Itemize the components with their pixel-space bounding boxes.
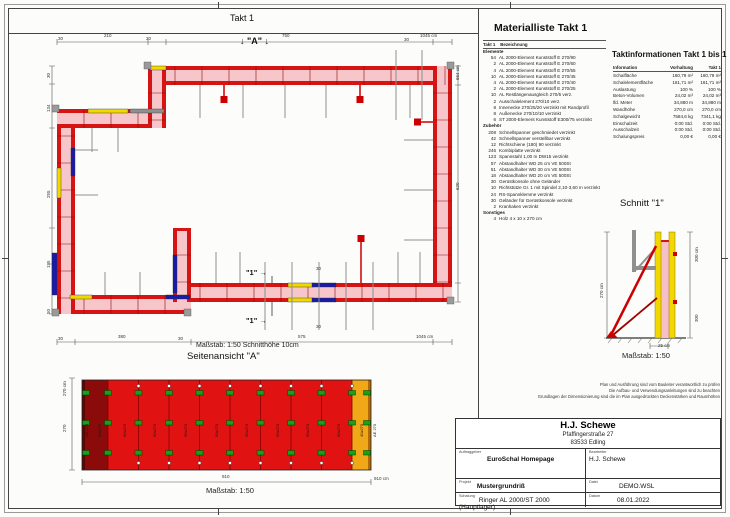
taktinfo-cell: Beton-Volumen xyxy=(613,93,663,100)
side-view-panel-label: 90x270 xyxy=(275,424,280,437)
projekt-label: Projekt xyxy=(459,480,471,484)
company-name: H.J. Schewe xyxy=(456,419,720,431)
taktinfo-row: Wandhöhe270,0 cm270,0 cm xyxy=(613,107,721,114)
schalung-value: Ringer AL 2000/ST 2000 (Hauptlager) xyxy=(459,497,582,511)
taktinfo-cell: 24,02 m³ xyxy=(693,93,721,100)
taktinfo-header: InformationVorhaltungTakt 1 xyxy=(613,65,721,72)
taktinfo-cell: 270,0 cm xyxy=(693,107,721,114)
plan-dimension: 30 xyxy=(178,336,183,341)
side-view-dimension: 910 xyxy=(222,474,230,479)
taktinfo-cell: Schalelementfläche xyxy=(613,80,663,87)
projekt-cell: Projekt Mustergrundriß xyxy=(456,479,586,492)
plan-dimension: 30 xyxy=(58,336,63,341)
taktinfo-cell: 100 % xyxy=(693,87,721,94)
side-view-scale-label: Maßstab: 1:50 xyxy=(206,486,254,495)
disclaimer: Plan und Ausführung sind vom Bauleiter v… xyxy=(520,382,720,399)
col-bezeichnung: Bezeichnung xyxy=(500,42,527,47)
taktinfo-cell: 7584,6 kg xyxy=(663,114,693,121)
side-view-panel-label: 40x270 xyxy=(359,424,364,437)
datei-cell: Datei DEMO.WSL xyxy=(586,479,720,492)
section-marker-a: ↓ "A" ↓ xyxy=(240,36,269,46)
materialliste-title: Materialliste Takt 1 xyxy=(494,22,587,34)
side-view-panel-label: 90x270 xyxy=(244,424,249,437)
taktinfo-row: Schalgewicht7584,6 kg7341,1 kg xyxy=(613,114,721,121)
taktinfo-col: Takt 1 xyxy=(693,65,721,70)
projekt-value: Mustergrundriß xyxy=(459,483,582,490)
schnitt-dimension: 300 xyxy=(694,314,699,322)
side-view-panel-label: AE 270 xyxy=(84,424,89,437)
taktinfo-cell: Einschalzeit xyxy=(613,121,663,128)
side-view-panel-label: 90x270 xyxy=(336,424,341,437)
taktinfo-row: Auslastung100 %100 % xyxy=(613,87,721,94)
taktinfo-cell: 7341,1 kg xyxy=(693,114,721,121)
col-takt: Takt 1 xyxy=(483,42,499,47)
datum-label: Datum xyxy=(589,494,600,498)
taktinfo-cell: Schalfläche xyxy=(613,73,663,80)
schnitt-title: Schnitt "1" xyxy=(620,198,664,209)
material-item: 6ST 2000-Element Kunststoff E300/75 verz… xyxy=(483,117,607,123)
taktinfo-cell: 0,00 € xyxy=(693,134,721,141)
side-view-dimension: 270 xyxy=(62,424,67,432)
plan-dimension: 255 xyxy=(46,190,51,198)
taktinfo-cell: Schalgewicht xyxy=(613,114,663,121)
disclaimer-line: Grundlagen der Dimensionierung sind die … xyxy=(520,394,720,400)
plan-dimension: 30 xyxy=(58,36,63,41)
material-item-text: ST 2000-Element Kunststoff E300/75 verzi… xyxy=(499,117,592,123)
side-view-dimension: 270 cm xyxy=(62,381,67,396)
side-view-panel-label: 90x270 xyxy=(152,424,157,437)
taktinfo-cell: 0,00 € xyxy=(663,134,693,141)
taktinfo-row: Schalelementfläche161,71 m²161,71 m² xyxy=(613,80,721,87)
taktinfo-cell: 270,0 cm xyxy=(663,107,693,114)
plan-dimension: 30 xyxy=(316,324,321,329)
taktinfo-cell: 34,880 m xyxy=(663,100,693,107)
side-view-dimension: 910 cm xyxy=(374,476,389,481)
taktinfo-cell: 0:00 Std. xyxy=(693,127,721,134)
auftraggeber-cell: Auftraggeber EuroSchal Homepage xyxy=(456,449,586,478)
section-marker-1: "1" → xyxy=(246,268,267,277)
side-view-title: Seitenansicht "A" xyxy=(187,351,260,362)
taktinfo-cell: 160,79 m² xyxy=(663,73,693,80)
bearbeiter-cell: Bearbeiter H.J. Schewe xyxy=(586,449,720,478)
taktinfo-col: Vorhaltung xyxy=(663,65,693,70)
taktinfo-row: Beton-Volumen24,02 m³24,02 m³ xyxy=(613,93,721,100)
material-item: 4Holz 4 x 10 x 270 cm xyxy=(483,216,607,222)
taktinfo-cell: 161,71 m² xyxy=(663,80,693,87)
taktinfo-row: Schalfläche160,79 m²160,79 m² xyxy=(613,73,721,80)
side-view-panel-label: 90x270 xyxy=(183,424,188,437)
taktinfo-cell: 160,79 m² xyxy=(693,73,721,80)
taktinfo-cell: 161,71 m² xyxy=(693,80,721,87)
materialliste-rows: Elemente54AL 2000-Element Kunststoff E 2… xyxy=(483,49,607,223)
bearbeiter-value: H.J. Schewe xyxy=(589,456,717,463)
taktinfo-cell: 0:00 Std. xyxy=(693,121,721,128)
plan-scale-label: Maßstab: 1:50 Schnitthöhe 10cm xyxy=(196,342,299,349)
plan-dimension: 50 xyxy=(46,309,51,314)
taktinfo-row: Ausschalzeit0:00 Std.0:00 Std. xyxy=(613,127,721,134)
plan-dimension: 620 xyxy=(455,182,460,190)
title-block: H.J. Schewe Pfaffingerstraße 27 83533 Ed… xyxy=(455,418,721,506)
taktinfo-row: lfd. Meter34,880 m34,880 m xyxy=(613,100,721,107)
taktinfo-row: Einschalzeit0:00 Std.0:00 Std. xyxy=(613,121,721,128)
taktinfo-cell: Ausschalzeit xyxy=(613,127,663,134)
plan-dimension: 30 xyxy=(404,37,409,42)
datei-label: Datei xyxy=(589,480,598,484)
company-block: H.J. Schewe Pfaffingerstraße 27 83533 Ed… xyxy=(456,419,720,449)
taktinfo-cell: Schalungspreis xyxy=(613,134,663,141)
taktinfo-rows: Schalfläche160,79 m²160,79 m²Schalelemen… xyxy=(613,73,721,141)
datei-value: DEMO.WSL xyxy=(589,483,717,490)
company-address2: 83533 Edling xyxy=(456,439,720,447)
taktinfo-cell: 34,880 m xyxy=(693,100,721,107)
plan-dimension: 1045 cm xyxy=(416,334,433,339)
schnitt-scale-label: Maßstab: 1:50 xyxy=(622,351,670,360)
plan-dimension: 664 cm xyxy=(455,65,460,80)
auftraggeber-value: EuroSchal Homepage xyxy=(459,456,582,463)
plan-dimension: 30 xyxy=(146,36,151,41)
schalung-label: Schalung xyxy=(459,494,475,498)
material-item-qty: 4 xyxy=(483,216,496,222)
plan-dimension: 380 xyxy=(118,334,126,339)
taktinfo-cell: lfd. Meter xyxy=(613,100,663,107)
side-view-panel-label: 90x270 xyxy=(97,424,102,437)
auftraggeber-label: Auftraggeber xyxy=(459,450,582,454)
side-view-panel-label: 90x270 xyxy=(214,424,219,437)
datum-value: 08.01.2022 xyxy=(589,497,717,504)
taktinfo-cell: Wandhöhe xyxy=(613,107,663,114)
taktinfo-cell: 0:00 Std. xyxy=(663,121,693,128)
taktinfo-cell: 0:00 Std. xyxy=(663,127,693,134)
schnitt-dimension: 25 cm xyxy=(658,343,670,348)
drawing-sheet: Takt 1 xyxy=(0,0,730,517)
plan-dimension: 30 xyxy=(316,266,321,271)
taktinfo-row: Schalungspreis0,00 €0,00 € xyxy=(613,134,721,141)
section-marker-1: "1" → xyxy=(246,316,267,325)
datum-cell: Datum 08.01.2022 xyxy=(586,493,720,507)
plan-dimension: 134 xyxy=(46,104,51,112)
taktinfo-cell: 24,02 m³ xyxy=(663,93,693,100)
side-view-panel-label: 90x270 xyxy=(122,424,127,437)
plan-dimension: 1045 cm xyxy=(420,33,437,38)
plan-dimension: 575 xyxy=(298,334,306,339)
taktinfo-title: Taktinformationen Takt 1 bis 1 xyxy=(612,50,726,59)
side-view-panel-label: AE 270 xyxy=(372,424,377,437)
bearbeiter-label: Bearbeiter xyxy=(589,450,717,454)
taktinfo-cell: 100 % xyxy=(663,87,693,94)
schalung-cell: Schalung Ringer AL 2000/ST 2000 (Hauptla… xyxy=(456,493,586,507)
taktinfo-cell: Auslastung xyxy=(613,87,663,94)
company-address1: Pfaffingerstraße 27 xyxy=(456,431,720,439)
schnitt-dimension: 270 cm xyxy=(599,283,604,298)
material-item-text: Holz 4 x 10 x 270 cm xyxy=(499,216,542,222)
plan-dimension: 750 xyxy=(282,33,290,38)
schnitt-dimension: 300 cm xyxy=(694,247,699,262)
taktinfo-col: Information xyxy=(613,65,663,70)
plan-dimension: 210 xyxy=(104,33,112,38)
plan-dimension: 30 xyxy=(46,73,51,78)
side-view-panel-label: 90x270 xyxy=(305,424,310,437)
materialliste-header: Takt 1 Bezeichnung xyxy=(483,40,606,49)
plan-dimension: 195 xyxy=(46,260,51,268)
